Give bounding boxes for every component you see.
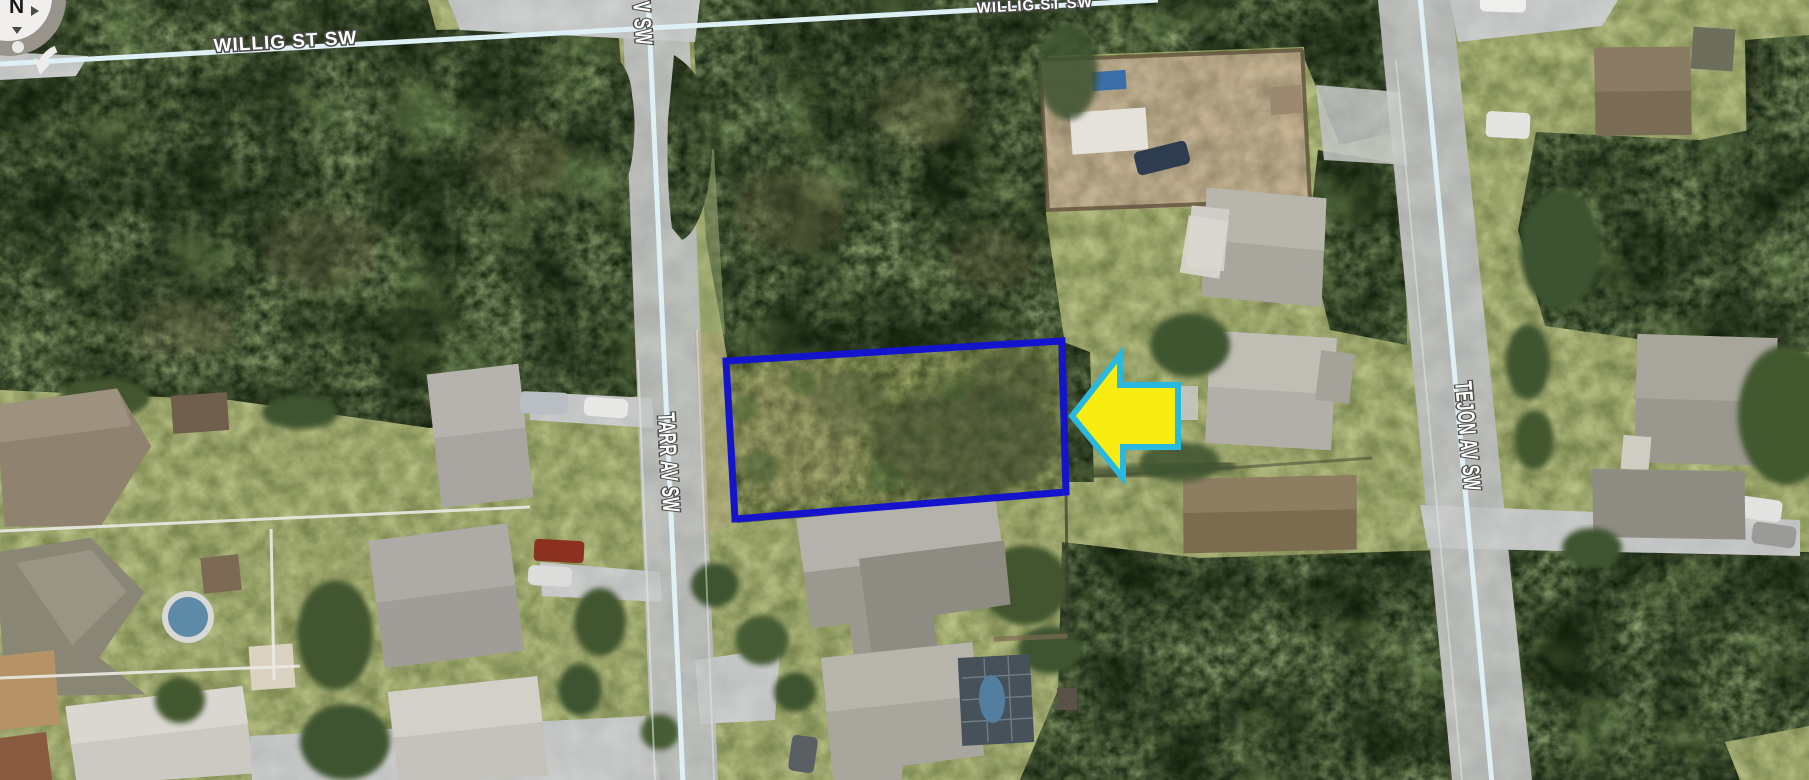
- svg-text:N: N: [9, 0, 24, 18]
- svg-text:V SW: V SW: [627, 1, 657, 47]
- svg-text:TARR AV SW: TARR AV SW: [652, 412, 684, 513]
